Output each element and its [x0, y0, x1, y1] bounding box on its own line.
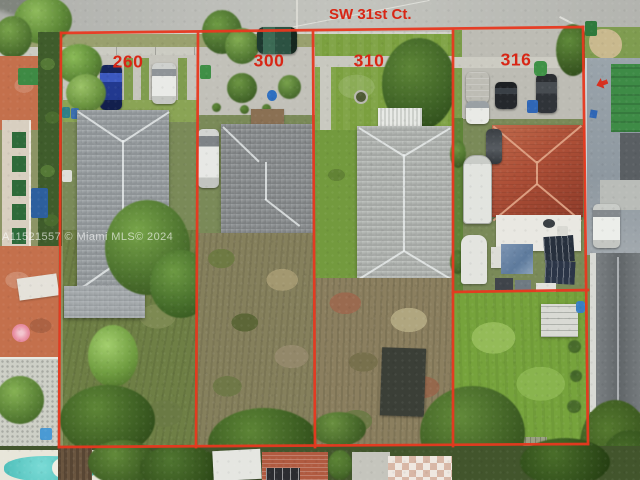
divider-300-310	[313, 32, 315, 447]
divider-260-300	[196, 33, 198, 447]
boundary-right	[583, 27, 588, 444]
lot-number-label: 300	[254, 51, 285, 72]
boundary-bottom	[59, 444, 588, 447]
boundary-top	[61, 27, 583, 33]
street-name-label: SW 31st Ct.	[329, 6, 412, 23]
lot-number-label: 260	[113, 52, 144, 73]
lot-number-label: 310	[354, 51, 385, 72]
divider-316-rear	[453, 290, 588, 292]
lot-number-label: 316	[501, 50, 532, 71]
aerial-listing-photo: SW 31st Ct. 260 300 310 316 A11521557 © …	[0, 0, 640, 480]
mls-watermark: A11521557 © Miami MLS© 2024	[2, 231, 173, 243]
